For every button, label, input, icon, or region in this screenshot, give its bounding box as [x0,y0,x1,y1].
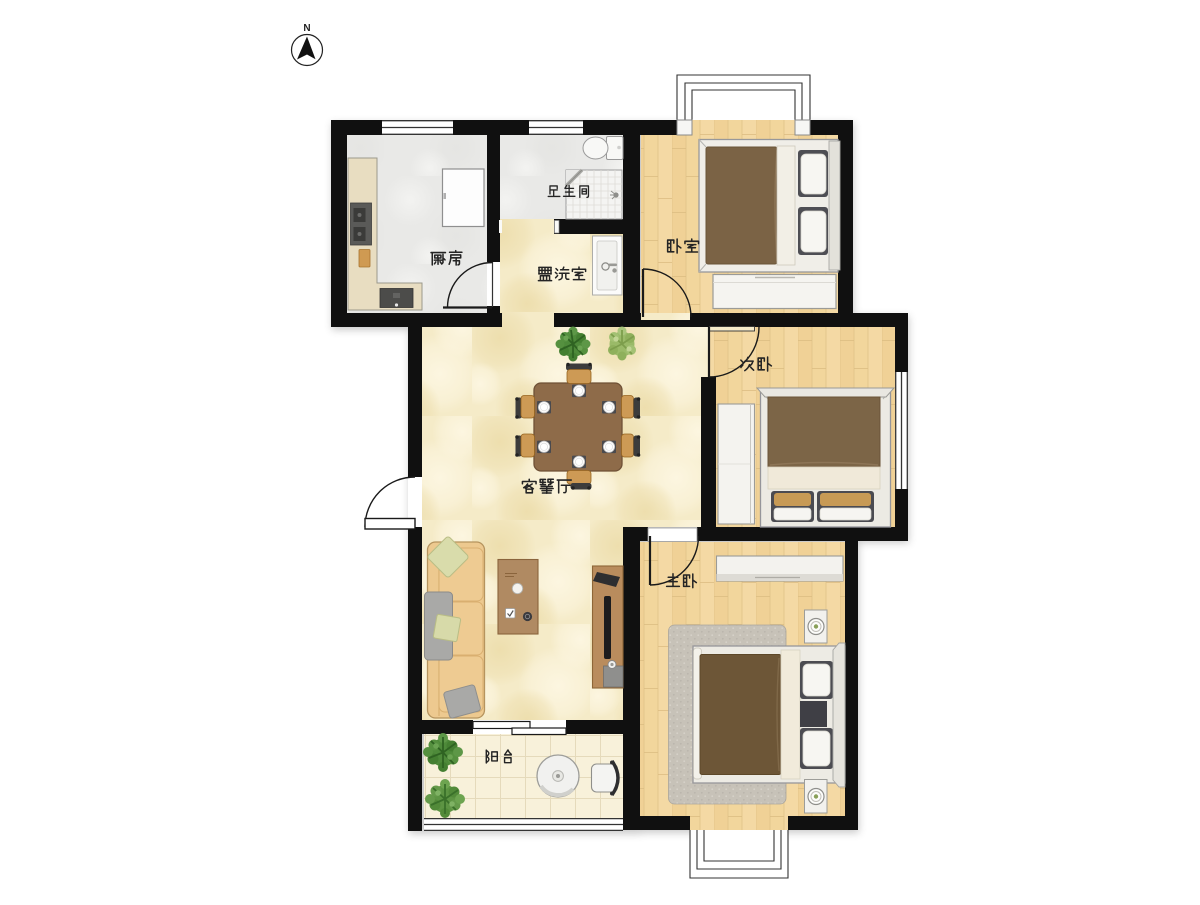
svg-text:N: N [303,23,310,34]
